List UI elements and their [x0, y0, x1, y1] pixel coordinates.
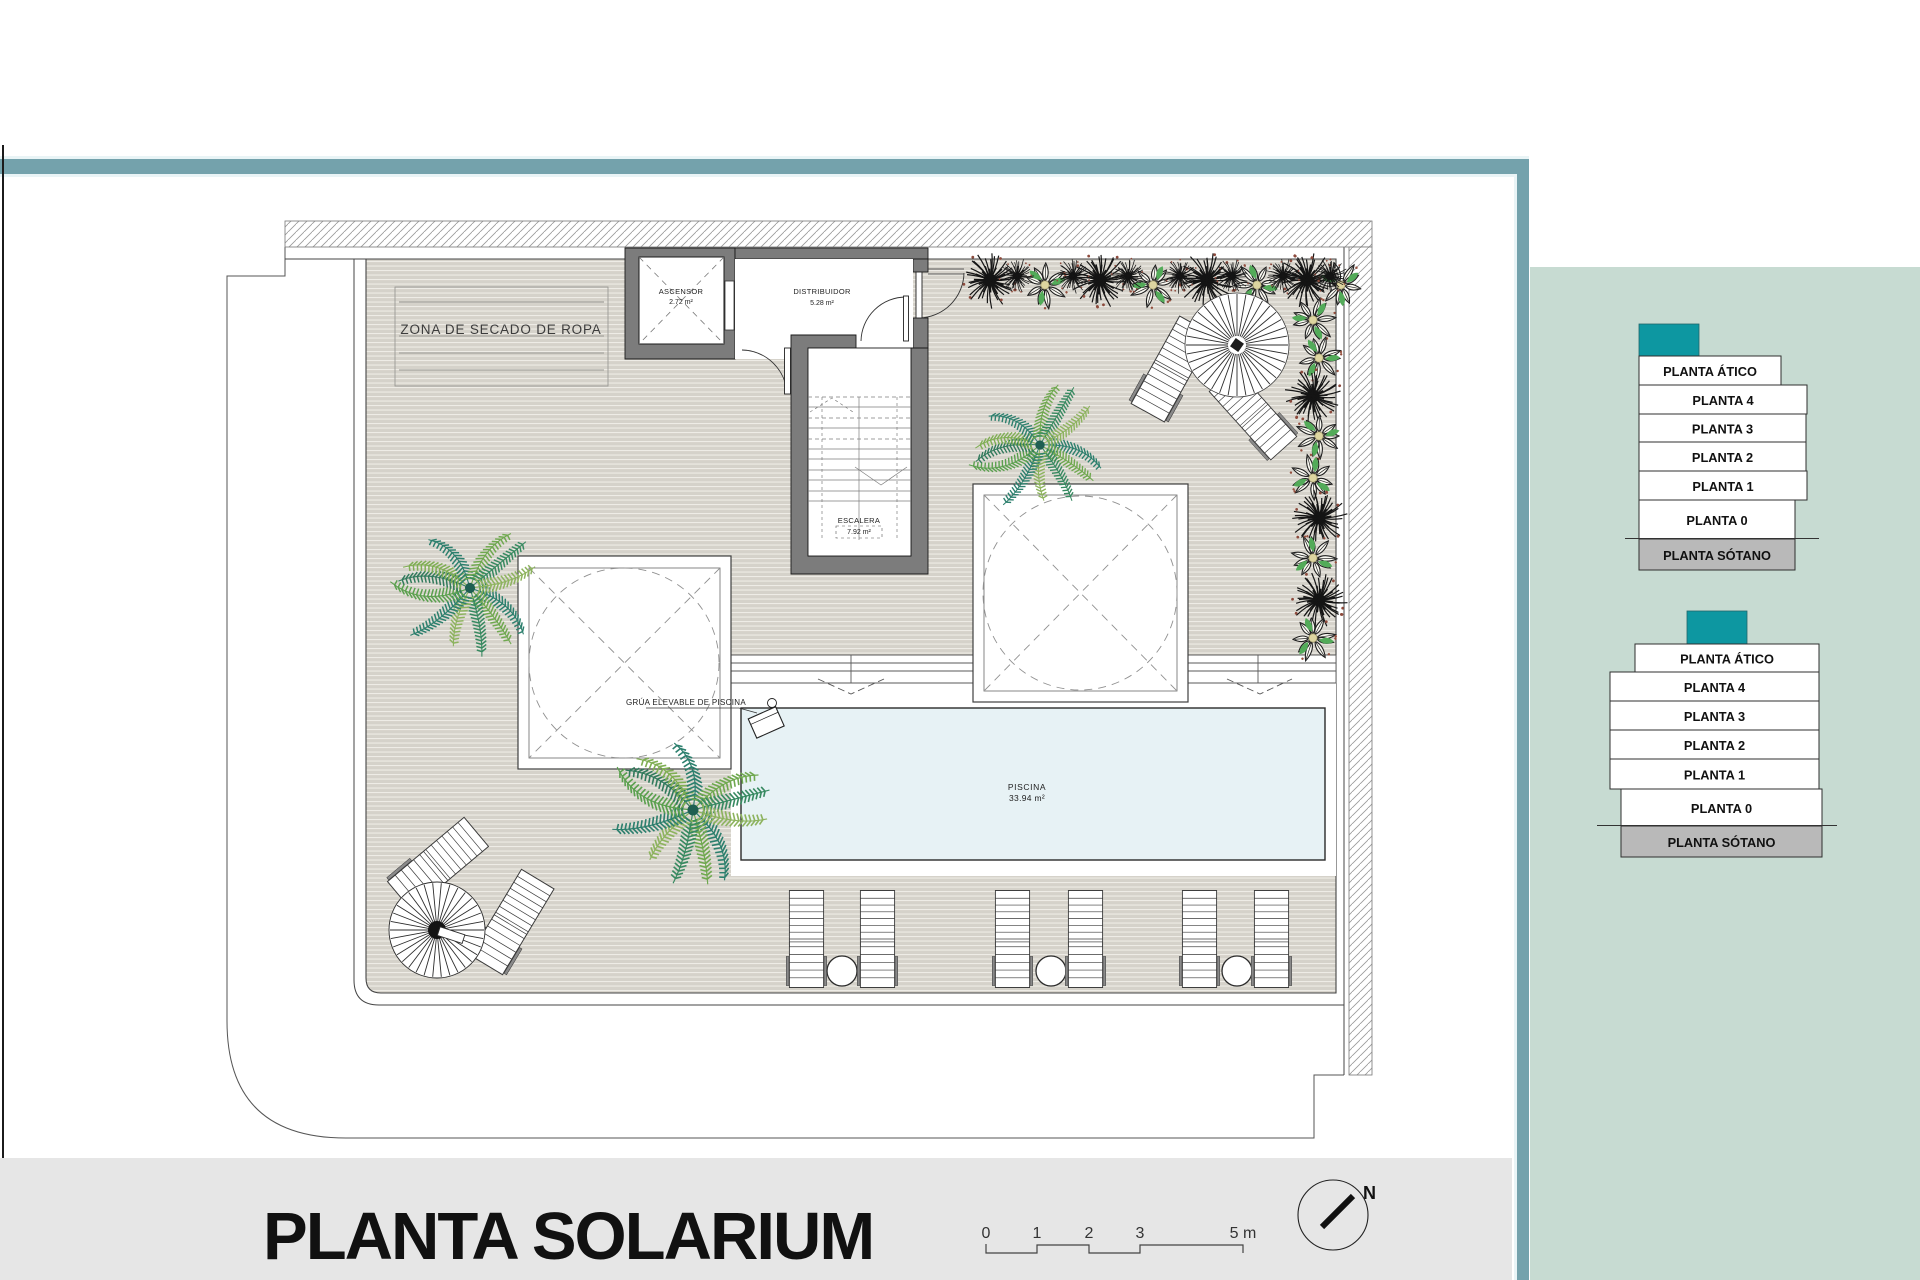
svg-text:PLANTA 0: PLANTA 0	[1686, 513, 1747, 528]
svg-text:33.94 m²: 33.94 m²	[1009, 793, 1045, 803]
svg-text:PLANTA ÁTICO: PLANTA ÁTICO	[1680, 652, 1774, 667]
svg-text:PLANTA 3: PLANTA 3	[1692, 422, 1753, 437]
svg-text:PLANTA 4: PLANTA 4	[1692, 393, 1754, 408]
svg-text:PLANTA 2: PLANTA 2	[1692, 450, 1753, 465]
svg-text:PISCINA: PISCINA	[1008, 782, 1046, 792]
svg-text:PLANTA SÓTANO: PLANTA SÓTANO	[1663, 548, 1771, 563]
svg-text:PLANTA 1: PLANTA 1	[1684, 768, 1745, 783]
svg-text:2.72 m²: 2.72 m²	[669, 299, 693, 306]
svg-text:GRÚA ELEVABLE DE PISCINA: GRÚA ELEVABLE DE PISCINA	[626, 698, 746, 707]
svg-text:ZONA DE SECADO DE ROPA: ZONA DE SECADO DE ROPA	[400, 322, 601, 337]
svg-text:PLANTA 1: PLANTA 1	[1692, 479, 1753, 494]
svg-text:3: 3	[1136, 1225, 1145, 1242]
svg-text:0: 0	[982, 1225, 991, 1242]
svg-text:1: 1	[1033, 1225, 1042, 1242]
svg-text:PLANTA 2: PLANTA 2	[1684, 738, 1745, 753]
svg-text:PLANTA SOLARIUM: PLANTA SOLARIUM	[263, 1199, 873, 1274]
svg-text:7.92 m²: 7.92 m²	[847, 529, 871, 536]
svg-text:ESCALERA: ESCALERA	[838, 516, 880, 525]
svg-text:PLANTA 3: PLANTA 3	[1684, 709, 1745, 724]
svg-text:2: 2	[1085, 1225, 1094, 1242]
svg-text:5.28 m²: 5.28 m²	[810, 300, 834, 307]
svg-text:N: N	[1363, 1183, 1376, 1203]
svg-text:PLANTA 0: PLANTA 0	[1691, 801, 1752, 816]
svg-text:PLANTA 4: PLANTA 4	[1684, 680, 1746, 695]
svg-text:DISTRIBUIDOR: DISTRIBUIDOR	[793, 287, 851, 296]
svg-text:5 m: 5 m	[1230, 1225, 1257, 1242]
svg-text:ASCENSOR: ASCENSOR	[659, 287, 704, 296]
svg-text:PLANTA ÁTICO: PLANTA ÁTICO	[1663, 364, 1757, 379]
svg-text:PLANTA SÓTANO: PLANTA SÓTANO	[1668, 835, 1776, 850]
